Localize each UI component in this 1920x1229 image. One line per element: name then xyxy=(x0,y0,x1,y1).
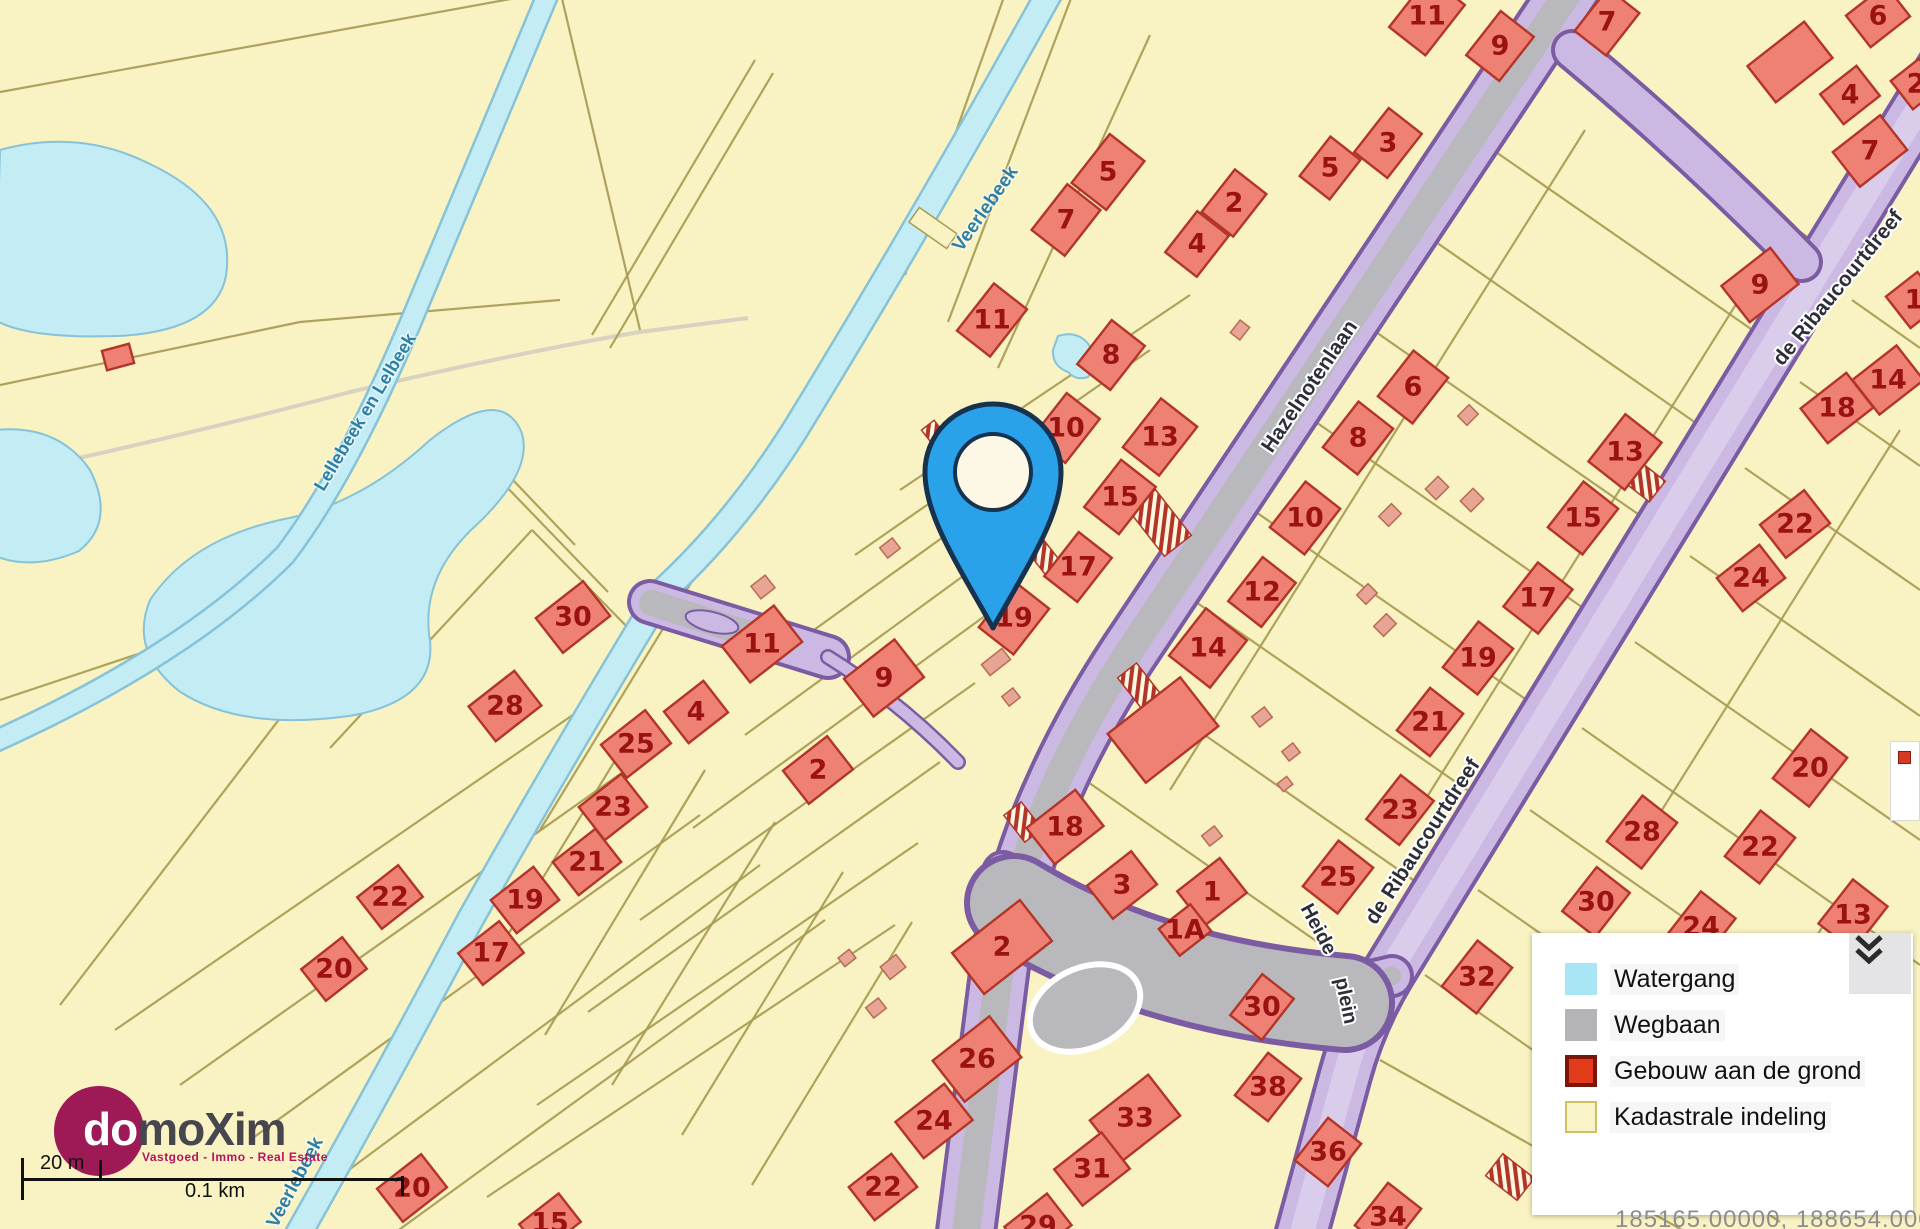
coordinate-readout: 185165.00000, 188654.00000 xyxy=(1615,1206,1920,1229)
parcel-number: 2 xyxy=(1907,69,1920,100)
parcel-number: 9 xyxy=(1491,31,1510,62)
parcel-number: 15 xyxy=(531,1208,569,1229)
parcel-number: 7 xyxy=(1861,136,1880,167)
parcel-number: 8 xyxy=(1102,340,1121,371)
parcel-number: 8 xyxy=(1349,423,1368,454)
parcel-number: 5 xyxy=(1099,157,1118,188)
parcel-number: 17 xyxy=(1059,552,1097,583)
parcel-number: 9 xyxy=(875,663,894,694)
legend-item-2: Gebouw aan de grond xyxy=(1565,1055,1913,1087)
parcel-number: 10 xyxy=(1286,503,1324,534)
parcel-number: 4 xyxy=(1188,229,1207,260)
parcel-number: 15 xyxy=(1564,503,1602,534)
legend-swatch-icon xyxy=(1565,1101,1597,1133)
legend-item-3: Kadastrale indeling xyxy=(1565,1101,1913,1133)
marker-icon xyxy=(1898,751,1911,764)
parcel-number: 30 xyxy=(554,602,592,633)
parcel-number: 22 xyxy=(864,1172,902,1203)
parcel-number: 13 xyxy=(1606,437,1644,468)
parcel-number: 23 xyxy=(1381,795,1419,826)
parcel-number: 26 xyxy=(958,1044,996,1075)
parcel-number: 28 xyxy=(1623,817,1661,848)
parcel-number: 31 xyxy=(1073,1154,1111,1185)
parcel-number: 7 xyxy=(1598,7,1617,38)
parcel-number: 30 xyxy=(1577,887,1615,918)
chevron-double-down-icon xyxy=(1849,933,1889,969)
parcel-number: 11 xyxy=(973,305,1011,336)
parcel-number: 33 xyxy=(1116,1103,1154,1134)
parcel-number: 25 xyxy=(617,729,655,760)
parcel-number: 13 xyxy=(1141,422,1179,453)
legend-label: Gebouw aan de grond xyxy=(1610,1056,1865,1087)
right-edge-panel[interactable] xyxy=(1890,741,1920,821)
parcel-number: 1 xyxy=(1905,285,1920,316)
parcel-number: 4 xyxy=(687,697,706,728)
scale-bar: 20 m 0.1 km xyxy=(0,1140,430,1220)
parcel-number: 30 xyxy=(1243,992,1281,1023)
parcel-number: 20 xyxy=(1791,753,1829,784)
legend-swatch-icon xyxy=(1565,1009,1597,1041)
parcel-number: 14 xyxy=(1869,365,1907,396)
parcel-number: 18 xyxy=(1818,393,1856,424)
parcel-number: 11 xyxy=(1408,1,1446,32)
parcel-number: 1A xyxy=(1165,915,1205,946)
parcel-number: 22 xyxy=(1741,832,1779,863)
parcel-number: 22 xyxy=(371,882,409,913)
parcel-number: 32 xyxy=(1458,962,1496,993)
parcel-number: 22 xyxy=(1776,509,1814,540)
parcel-number: 20 xyxy=(315,954,353,985)
parcel-number: 34 xyxy=(1369,1202,1407,1229)
parcel-number: 17 xyxy=(1519,583,1557,614)
parcel-number: 24 xyxy=(1732,563,1770,594)
parcel-number: 3 xyxy=(1379,128,1398,159)
map-viewport[interactable]: 5711131517192481012119119735681012147911… xyxy=(0,0,1920,1229)
parcel-number: 2 xyxy=(809,755,828,786)
scale-label-20m: 20 m xyxy=(40,1152,84,1175)
parcel-number: 24 xyxy=(915,1106,953,1137)
parcel-number: 17 xyxy=(472,938,510,969)
legend-collapse-button[interactable] xyxy=(1849,933,1911,994)
legend-label: Wegbaan xyxy=(1610,1010,1725,1041)
legend-swatch-icon xyxy=(1565,1055,1597,1087)
parcel-number: 7 xyxy=(1057,205,1076,236)
parcel-number: 14 xyxy=(1189,633,1227,664)
parcel-number: 38 xyxy=(1249,1072,1287,1103)
parcel-number: 19 xyxy=(1459,643,1497,674)
parcel-number: 5 xyxy=(1321,153,1340,184)
parcel-number: 3 xyxy=(1113,870,1132,901)
parcel-number: 23 xyxy=(594,792,632,823)
legend-label: Watergang xyxy=(1610,964,1739,995)
legend-item-1: Wegbaan xyxy=(1565,1009,1913,1041)
legend-swatch-icon xyxy=(1565,963,1597,995)
parcel-number: 21 xyxy=(1411,707,1449,738)
parcel-number: 25 xyxy=(1319,862,1357,893)
parcel-number: 2 xyxy=(993,932,1012,963)
parcel-number: 2 xyxy=(1225,188,1244,219)
parcel-number: 18 xyxy=(1046,812,1084,843)
parcel-number: 15 xyxy=(1101,482,1139,513)
parcel-number: 11 xyxy=(743,629,781,660)
parcel-number: 21 xyxy=(568,847,606,878)
parcel-number: 9 xyxy=(1751,270,1770,301)
parcel-number: 29 xyxy=(1019,1211,1057,1229)
parcel-number: 1 xyxy=(1203,877,1222,908)
parcel-number: 4 xyxy=(1841,80,1860,111)
scale-label-01km: 0.1 km xyxy=(185,1180,245,1203)
parcel-number: 28 xyxy=(486,691,524,722)
legend-label: Kadastrale indeling xyxy=(1610,1102,1831,1133)
legend-panel: WatergangWegbaanGebouw aan de grondKadas… xyxy=(1532,933,1913,1215)
parcel-number: 19 xyxy=(506,885,544,916)
parcel-number: 12 xyxy=(1243,577,1281,608)
parcel-number: 6 xyxy=(1404,372,1423,403)
parcel-number: 13 xyxy=(1834,900,1872,931)
parcel-number: 6 xyxy=(1869,1,1888,32)
parcel-number: 36 xyxy=(1309,1137,1347,1168)
